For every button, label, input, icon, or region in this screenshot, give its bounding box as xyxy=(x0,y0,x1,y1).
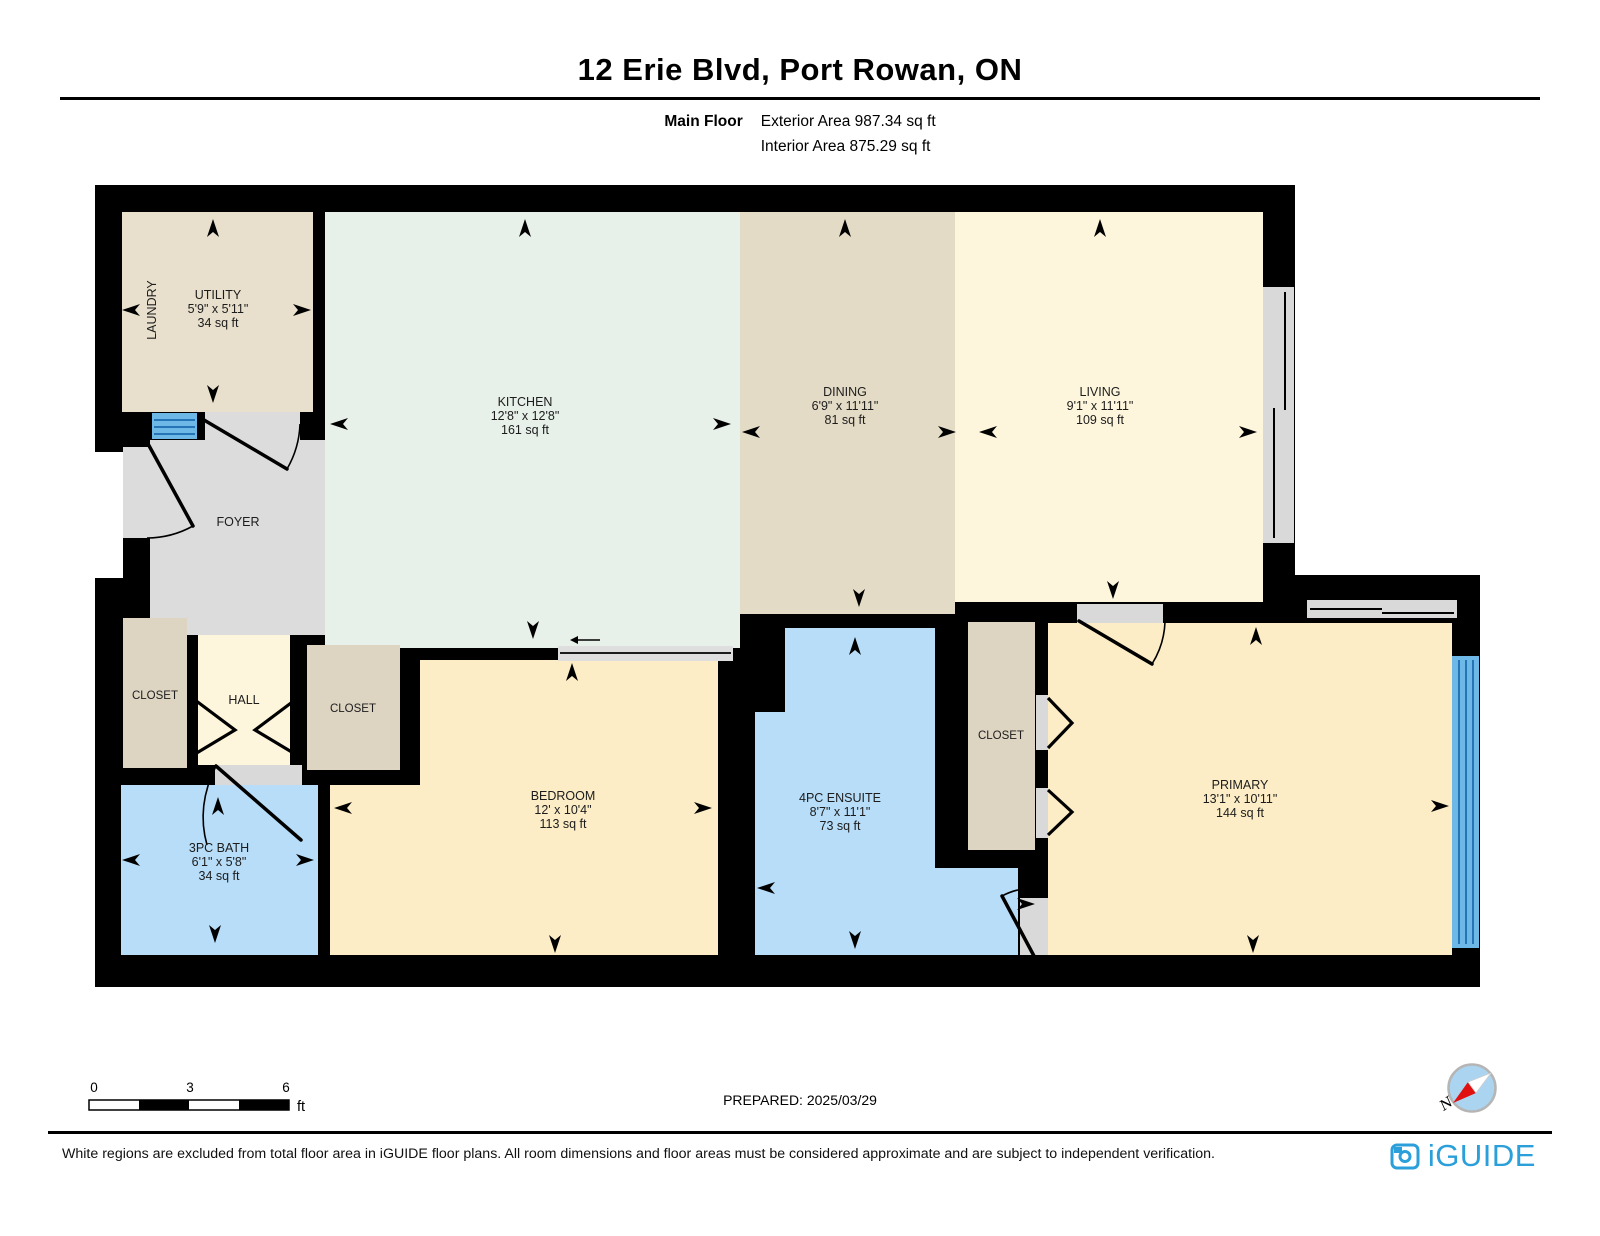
primary-name: PRIMARY xyxy=(1212,778,1269,792)
room-ensuite-floor-ext xyxy=(935,868,1018,955)
closet-bifold-opening-1 xyxy=(1036,695,1048,750)
scale-bar-seg xyxy=(239,1100,289,1110)
closet-primary-label: CLOSET xyxy=(978,730,1024,742)
floor-areas: Exterior Area 987.34 sq ft Interior Area… xyxy=(761,109,936,159)
living-name: LIVING xyxy=(1080,385,1121,399)
floor-label: Main Floor xyxy=(664,109,742,159)
living-area: 109 sq ft xyxy=(1076,413,1124,427)
primary-area: 144 sq ft xyxy=(1216,806,1264,820)
kitchen-name: KITCHEN xyxy=(498,395,553,409)
bath-name: 3PC BATH xyxy=(189,841,249,855)
ensuite-name: 4PC ENSUITE xyxy=(799,791,881,805)
room-ensuite-floor-top xyxy=(785,628,935,712)
utility-door-opening xyxy=(205,412,300,440)
room-foyer-floor xyxy=(150,440,325,635)
primary-dims: 13'1" x 10'11" xyxy=(1203,792,1278,806)
closet-bedroom-label: CLOSET xyxy=(330,703,376,715)
bath-dims: 6'1" x 5'8" xyxy=(192,855,247,869)
floor-summary: Main Floor Exterior Area 987.34 sq ft In… xyxy=(664,109,935,159)
scale-bar-seg xyxy=(139,1100,189,1110)
scale-tick-6: 6 xyxy=(282,1080,290,1095)
disclaimer-text: White regions are excluded from total fl… xyxy=(62,1146,1215,1162)
bedroom-name: BEDROOM xyxy=(531,789,596,803)
prepared-date: PREPARED: 2025/03/29 xyxy=(723,1092,877,1108)
utility-name: UTILITY xyxy=(195,288,242,302)
utility-area: 34 sq ft xyxy=(198,316,240,330)
footer-divider xyxy=(48,1131,1552,1134)
ensuite-dims: 8'7" x 11'1" xyxy=(810,805,871,819)
primary-door-opening xyxy=(1077,604,1163,623)
interior-area: Interior Area 875.29 sq ft xyxy=(761,134,936,159)
scale-bar: 0 3 6 ft xyxy=(89,1080,305,1115)
floor-plan-drawing: UTILITY 5'9" x 5'11" 34 sq ft LAUNDRY KI… xyxy=(0,0,1600,1236)
exterior-notch xyxy=(95,452,123,578)
scale-tick-0: 0 xyxy=(90,1080,98,1095)
bath-area: 34 sq ft xyxy=(199,869,241,883)
dining-area: 81 sq ft xyxy=(825,413,867,427)
closet-bifold-opening-2 xyxy=(1036,788,1048,838)
kitchen-dims: 12'8" x 12'8" xyxy=(491,409,560,423)
scale-tick-3: 3 xyxy=(186,1080,194,1095)
header-divider xyxy=(60,97,1540,100)
foyer-label: FOYER xyxy=(216,515,259,529)
camera-icon xyxy=(1389,1141,1421,1171)
scale-unit: ft xyxy=(297,1099,305,1115)
kitchen-area: 161 sq ft xyxy=(501,423,549,437)
compass-icon: N xyxy=(1436,1065,1495,1115)
page-title: 12 Erie Blvd, Port Rowan, ON xyxy=(0,52,1600,88)
dining-dims: 6'9" x 11'11" xyxy=(812,399,879,413)
dining-name: DINING xyxy=(823,385,867,399)
closet-left-label: CLOSET xyxy=(132,690,178,702)
hall-label: HALL xyxy=(228,693,259,707)
exterior-area: Exterior Area 987.34 sq ft xyxy=(761,109,936,134)
bedroom-dims: 12' x 10'4" xyxy=(534,803,591,817)
laundry-label: LAUNDRY xyxy=(145,280,159,340)
living-dims: 9'1" x 11'11" xyxy=(1067,399,1134,413)
ensuite-area: 73 sq ft xyxy=(820,819,862,833)
entry-door-opening xyxy=(123,447,150,538)
floor-plan-page: UTILITY 5'9" x 5'11" 34 sq ft LAUNDRY KI… xyxy=(0,0,1600,1236)
brand-name: iGUIDE xyxy=(1428,1138,1536,1174)
iguide-logo: iGUIDE xyxy=(1389,1138,1536,1174)
living-window xyxy=(1263,287,1294,543)
room-ensuite-floor-main xyxy=(755,712,935,955)
bedroom-area: 113 sq ft xyxy=(539,817,587,831)
utility-dims: 5'9" x 5'11" xyxy=(188,302,249,316)
